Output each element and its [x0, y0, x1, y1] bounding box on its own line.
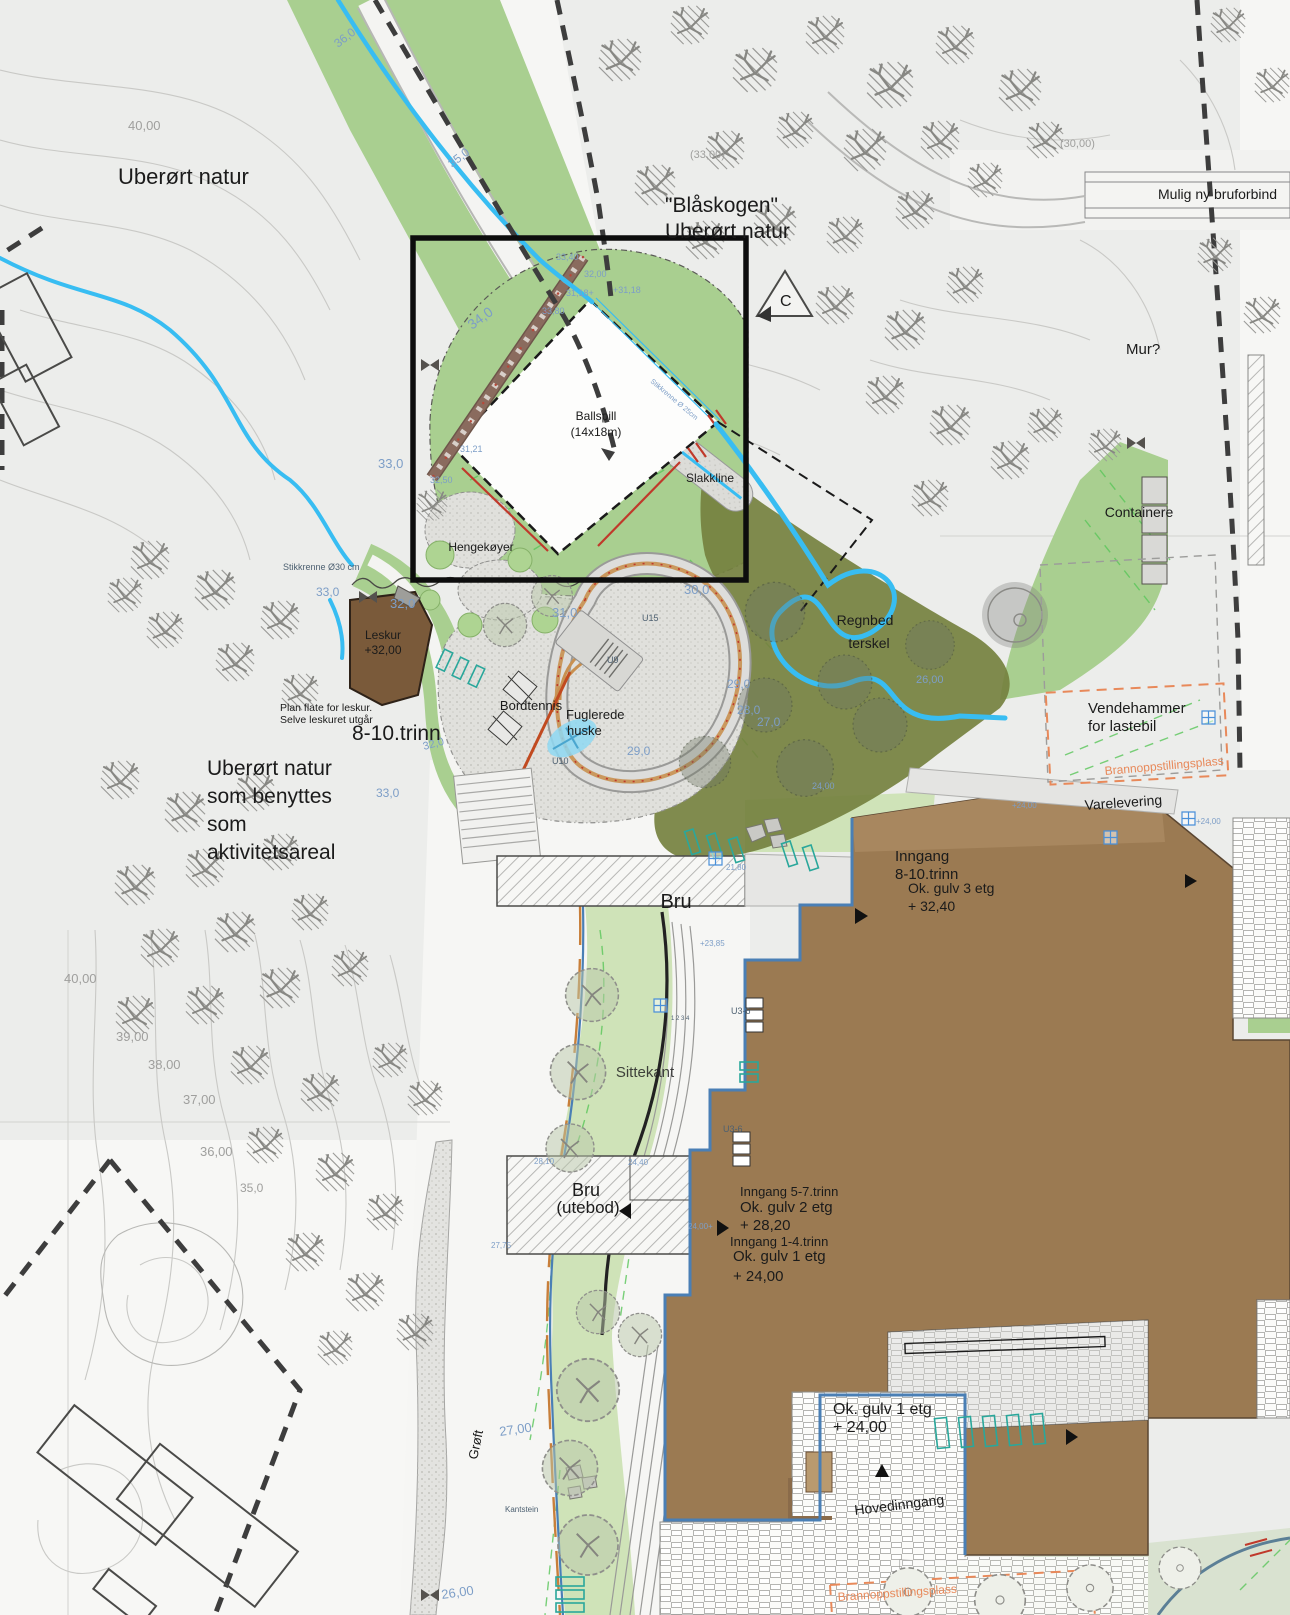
label-ok-gulv3-1: Ok. gulv 3 etg	[908, 880, 994, 896]
spot-label: 33,80	[542, 306, 565, 316]
spot-label: 27,0	[757, 715, 781, 729]
spot-label: +23,85	[700, 939, 725, 948]
label-ballspill-dim: (14x18m)	[571, 425, 622, 439]
containere-units	[1142, 477, 1167, 584]
label-ok-gulv1-2: + 24,00	[733, 1268, 783, 1285]
site-plan-drawing: 40,0036,035,0(33,00)(30,00)34,033,4032,0…	[0, 0, 1290, 1615]
spot-label: 31,0	[552, 605, 577, 620]
spot-label: 24,00+	[688, 1222, 713, 1231]
label-blaskogen: "Blåskogen"	[665, 194, 778, 217]
label-trinn-8-10: 8-10.trinn	[352, 722, 441, 745]
tree-icon	[906, 621, 955, 670]
spot-label: U3-6	[723, 1124, 743, 1134]
label-sittekant: Sittekant	[616, 1064, 675, 1081]
label-blaskogen-2: Uberørt natur	[665, 220, 790, 243]
label-bru: Bru	[660, 891, 691, 913]
tree-icon	[542, 1440, 597, 1495]
spot-label: 29,0	[627, 744, 651, 758]
label-bru-utebod-2: (utebod)	[556, 1198, 619, 1217]
label-bru-utebod-1: Bru	[572, 1180, 600, 1200]
label-mulig-ny-bru: Mulig ny bruforbind	[1158, 186, 1277, 202]
label-ok-gulv3-2: + 32,40	[908, 898, 955, 914]
tree-icon	[558, 1515, 618, 1575]
label-ok-gulv1-1: Ok. gulv 1 etg	[733, 1248, 826, 1265]
spot-label: 33,0	[316, 585, 340, 599]
spot-label: 37,00	[183, 1092, 216, 1107]
site-plan-canvas: 40,0036,035,0(33,00)(30,00)34,033,4032,0…	[0, 0, 1290, 1615]
spot-label: 21,80	[726, 863, 747, 872]
label-vendehammer-2: for lastebil	[1088, 718, 1156, 735]
label-natur-4: aktivitetsareal	[207, 841, 335, 864]
spot-label: 24,40	[628, 1158, 649, 1167]
tree-icon	[618, 1313, 661, 1356]
label-uberort-natur-top: Uberørt natur	[118, 164, 249, 189]
label-vendehammer-1: Vendehammer	[1088, 700, 1186, 717]
spot-label: 26,00	[916, 674, 944, 686]
label-inngang-57: Inngang 5-7.trinn	[740, 1184, 838, 1199]
label-regnbed-1: Regnbed	[837, 612, 894, 628]
spot-label: +24,00	[1196, 817, 1221, 826]
tree-icon	[818, 655, 872, 709]
label-fuglerede-2: huske	[567, 723, 602, 738]
label-regnbed-2: terskel	[848, 635, 889, 651]
label-hengekoyer: Hengekøyer	[448, 540, 513, 554]
tree-icon	[1159, 1547, 1201, 1589]
tree-icon	[550, 1044, 605, 1099]
spot-label: 32,50	[430, 475, 453, 485]
spot-label: 27,75	[491, 1241, 512, 1250]
tree-icon	[679, 736, 730, 787]
spot-label: 31,21	[460, 444, 483, 454]
spot-label: 31,18+	[566, 288, 594, 298]
label-ballspill: Ballspill	[576, 409, 617, 423]
label-ok-gulv2-2: + 28,20	[740, 1217, 790, 1234]
label-fuglerede-1: Fuglerede	[566, 707, 625, 722]
tree-icon	[576, 1290, 619, 1333]
label-bordtennis: Bordtennis	[500, 698, 563, 713]
label-ok-gulv1b-2: + 24,00	[833, 1419, 887, 1436]
label-natur-3: som	[207, 813, 247, 836]
spot-label: 32,0	[390, 596, 415, 611]
label-mur: Mur?	[1126, 341, 1160, 358]
spot-label: +31,18	[613, 285, 641, 295]
spot-label: 28,10	[534, 1157, 555, 1166]
spot-label: 40,00	[64, 971, 97, 986]
spot-label: 1 2 3 4	[671, 1016, 690, 1022]
label-leskur-elev: +32,00	[364, 643, 401, 657]
spot-label: U15	[642, 613, 659, 623]
spot-label: (30,00)	[1060, 138, 1095, 150]
label-section-c: C	[780, 293, 792, 310]
label-natur-1: Uberørt natur	[207, 757, 332, 780]
tree-icon	[557, 1359, 619, 1421]
label-inngang-810-1: Inngang	[895, 848, 949, 865]
spot-label: +24,00	[1012, 801, 1037, 810]
spot-label: U3-6	[731, 1006, 751, 1016]
label-plan-flate-1: Plan flate for leskur.	[280, 702, 372, 714]
spot-label: U10	[552, 756, 569, 766]
tree-icon	[1067, 1565, 1113, 1611]
label-ok-gulv2-1: Ok. gulv 2 etg	[740, 1199, 833, 1216]
label-leskur: Leskur	[365, 628, 401, 642]
spot-label: 29,0	[727, 677, 751, 691]
label-inngang-14: Inngang 1-4.trinn	[730, 1234, 828, 1249]
spot-label: (33,00)	[690, 149, 725, 161]
spot-label: U9	[607, 655, 619, 665]
label-slakkline: Slakkline	[686, 471, 734, 485]
tree-icon	[853, 698, 907, 752]
label-ok-gulv1b-1: Ok. gulv 1 etg	[833, 1401, 932, 1418]
spot-label: 24,00	[812, 781, 835, 791]
spot-label: 33,0	[378, 456, 403, 471]
bridge-bru	[497, 856, 745, 906]
east-ramp	[1233, 818, 1290, 1018]
label-natur-2: som benyttes	[207, 785, 332, 808]
spot-label: 40,00	[128, 118, 161, 133]
tree-icon	[566, 969, 619, 1022]
spot-label: Stikkrenne Ø30 cm	[283, 562, 360, 572]
tree-icon	[745, 582, 804, 641]
spot-label: 30,0	[684, 582, 709, 597]
label-containere: Containere	[1105, 504, 1174, 520]
spot-label: 35,0	[240, 1181, 264, 1195]
spot-label: 32,00	[584, 269, 607, 279]
stairs-upper	[454, 768, 541, 864]
spot-label: 36,00	[200, 1144, 233, 1159]
tree-icon	[483, 603, 526, 646]
spot-label: Kantstein	[505, 1505, 538, 1514]
spot-label: 33,40	[556, 252, 579, 262]
spot-label: 39,00	[116, 1029, 149, 1044]
spot-label: 33,0	[376, 786, 400, 800]
spot-label: 38,00	[148, 1057, 181, 1072]
